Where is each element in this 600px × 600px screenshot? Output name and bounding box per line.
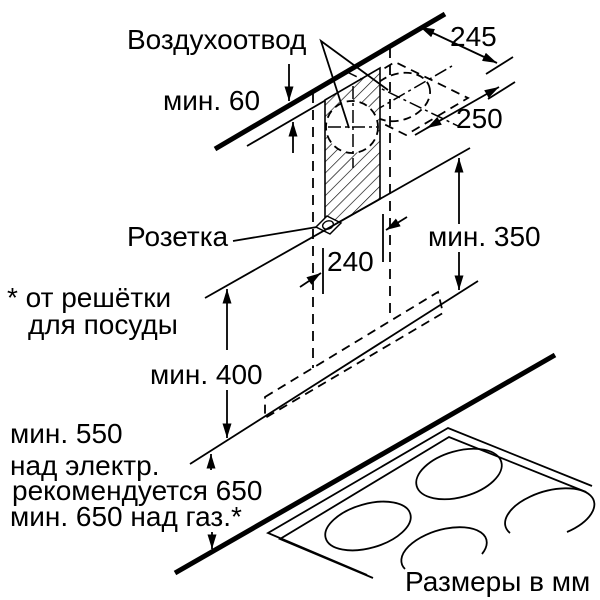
air-outlet-label: Воздухоотвод xyxy=(127,24,306,55)
dim-250-label: 250 xyxy=(456,103,503,134)
dim-240-label: 240 xyxy=(327,246,374,277)
diagram-canvas: Воздухоотвод 245 мин. 60 250 Розетка мин… xyxy=(0,0,600,600)
min-400-label: мин. 400 xyxy=(150,359,263,390)
min-60-label: мин. 60 xyxy=(163,85,260,116)
installation-diagram: Воздухоотвод 245 мин. 60 250 Розетка мин… xyxy=(0,0,600,600)
socket-label: Розетка xyxy=(127,221,229,252)
units-note: Размеры в мм xyxy=(405,566,590,597)
min-350-label: мин. 350 xyxy=(428,221,541,252)
footnote-line2: для посуды xyxy=(28,309,178,340)
dim-245-label: 245 xyxy=(450,21,497,52)
clearance-line1: мин. 550 xyxy=(10,418,123,449)
clearance-line4: мин. 650 над газ.* xyxy=(10,501,242,532)
